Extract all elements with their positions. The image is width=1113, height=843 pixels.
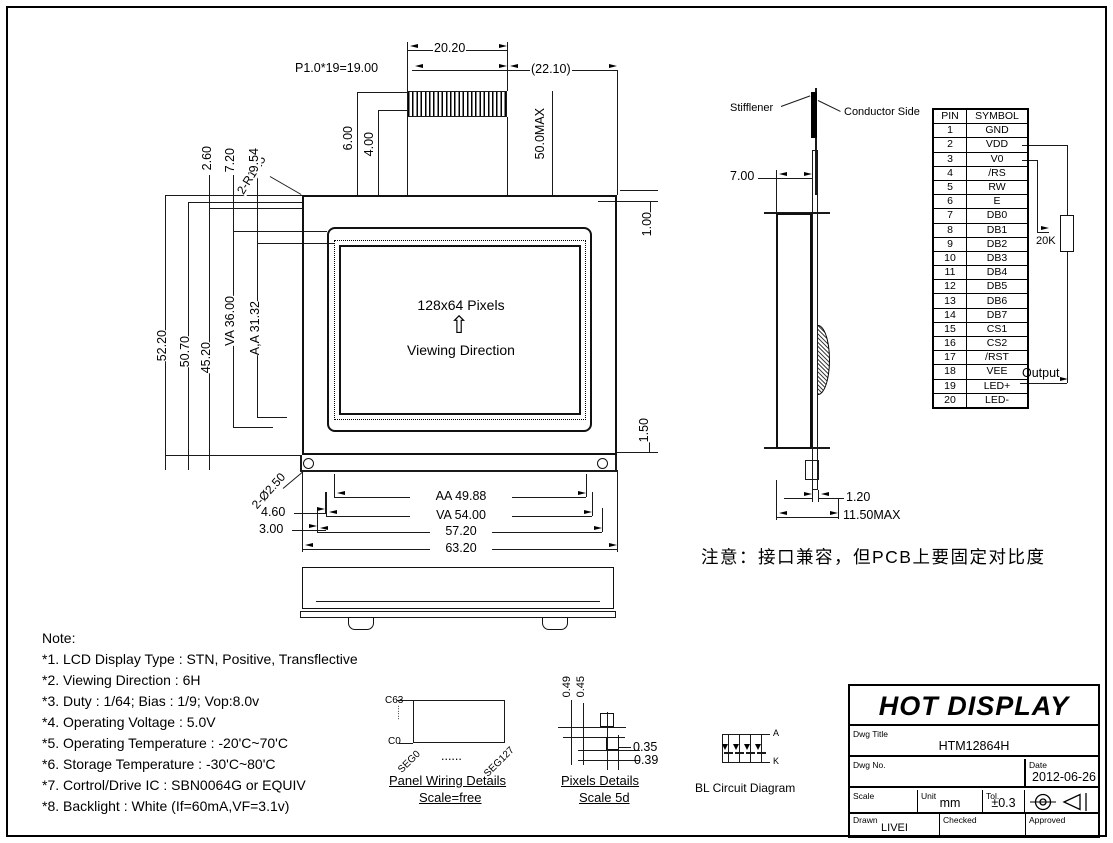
pin-number: 5 [933, 180, 967, 194]
dim-height-max: 50.0MAX [534, 108, 547, 159]
scale-label: Scale [853, 791, 874, 801]
pin-number: 19 [933, 379, 967, 393]
pin-symbol: E [967, 195, 1029, 209]
draw-line [292, 530, 326, 531]
arrowhead [1060, 377, 1071, 381]
draw-line [619, 747, 631, 748]
draw-line [300, 470, 617, 472]
dim-width-va: VA 54.00 [410, 509, 512, 522]
draw-box [812, 150, 818, 490]
title-block-dwg-no-cell: Dwg No. [850, 759, 1024, 788]
unit-value: mm [918, 796, 982, 810]
notes-block: Note: *1. LCD Display Type : STN, Positi… [42, 628, 358, 817]
dim-top-width: 20.20 [433, 42, 466, 55]
pin-number: 8 [933, 223, 967, 237]
dim-height-va: VA 36.00 [224, 296, 237, 346]
draw-line [558, 727, 626, 728]
pin-row: 1GND [933, 124, 1028, 138]
draw-box [542, 617, 568, 630]
draw-box [303, 458, 314, 469]
arrowhead [804, 492, 815, 496]
draw-line [407, 117, 408, 195]
checked-label: Checked [943, 815, 977, 825]
pin-symbol: V0 [967, 152, 1029, 166]
approved-label: Approved [1029, 815, 1065, 825]
pixels-dim-049: 0.49 [561, 676, 574, 697]
pin-symbol: DB1 [967, 223, 1029, 237]
pin-row: 7DB0 [933, 209, 1028, 223]
dim-height-5220: 52.20 [156, 330, 169, 361]
pin-symbol: DB7 [967, 308, 1029, 322]
dim-460: 4.60 [260, 506, 286, 519]
pin-symbol: DB3 [967, 251, 1029, 265]
draw-line [357, 92, 358, 195]
panel-wiring-vdots: ...... [390, 705, 403, 720]
pin-number: 20 [933, 393, 967, 408]
draw-line [758, 178, 776, 179]
dim-300: 3.00 [258, 523, 284, 536]
pin-row: 16CS2 [933, 337, 1028, 351]
title-block-scale-cell: Scale [850, 790, 917, 814]
date-value: 2012-06-26 [1026, 770, 1096, 784]
arrowhead [309, 524, 320, 528]
title-block-dwg-title-cell: Dwg Title HTM12864H [850, 728, 1098, 757]
note-item: *3. Duty : 1/64; Bias : 1/9; Vop:8.0v [42, 691, 358, 712]
draw-line [624, 760, 632, 761]
arrowhead [584, 510, 595, 514]
pin-number: 4 [933, 166, 967, 180]
arrowhead [407, 44, 418, 48]
draw-line [776, 178, 812, 179]
draw-line [750, 734, 751, 762]
arrowhead [499, 44, 510, 48]
draw-line [233, 427, 273, 428]
pixels-dim-039: 0.39 [633, 754, 659, 767]
arrowhead [804, 172, 815, 176]
dim-150: 1.50 [638, 418, 651, 442]
pin-symbol: /RS [967, 166, 1029, 180]
pin-row: 8DB1 [933, 223, 1028, 237]
pin-symbol: VEE [967, 365, 1029, 379]
draw-box [413, 700, 505, 743]
pin-symbol: /RST [967, 351, 1029, 365]
draw-line [620, 190, 658, 191]
pin-row: 14DB7 [933, 308, 1028, 322]
panel-wiring-bottom-label: C0 [387, 735, 402, 748]
draw-line [1067, 145, 1068, 215]
draw-line [412, 70, 507, 71]
draw-line [257, 417, 287, 418]
draw-box [407, 91, 507, 117]
pin-number: 14 [933, 308, 967, 322]
pin-number: 1 [933, 124, 967, 138]
pin-number: 10 [933, 251, 967, 265]
dim-600: 6.00 [342, 126, 355, 150]
arrowhead [317, 507, 328, 511]
pin-symbol: CS2 [967, 337, 1029, 351]
stiffener-label: Stifflener [729, 102, 774, 115]
note-item: *8. Backlight : White (If=60mA,VF=3.1v) [42, 796, 358, 817]
company-name: HOT DISPLAY [850, 686, 1098, 726]
title-block-checked-cell: Checked [939, 814, 1025, 836]
note-item: *2. Viewing Direction : 6H [42, 670, 358, 691]
dim-width-6320: 63.20 [430, 542, 492, 555]
dim-height-aa: A,A 31.32 [249, 301, 262, 355]
pin-number: 18 [933, 365, 967, 379]
draw-line [257, 175, 258, 417]
draw-line [776, 170, 777, 213]
draw-line [739, 734, 740, 762]
draw-line [378, 110, 407, 111]
pin-row: 15CS1 [933, 322, 1028, 336]
draw-box [600, 713, 614, 727]
draw-box [811, 92, 817, 138]
tol-value: ±0.3 [983, 796, 1024, 810]
draw-line [784, 498, 812, 499]
arrowhead [578, 491, 589, 495]
arrowhead [722, 744, 728, 753]
pin-row: 10DB3 [933, 251, 1028, 265]
draw-line [357, 92, 407, 93]
pin-symbol: GND [967, 124, 1029, 138]
pin-symbol: DB2 [967, 237, 1029, 251]
arrowhead [1041, 226, 1052, 230]
pin-number: 12 [933, 280, 967, 294]
arrowhead [818, 492, 829, 496]
title-block-approved-cell: Approved [1025, 814, 1098, 836]
conductor-side-label: Conductor Side [843, 106, 921, 119]
draw-line [728, 734, 729, 762]
draw-line [552, 91, 553, 195]
pin-number: 9 [933, 237, 967, 251]
dwg-no-label: Dwg No. [853, 760, 886, 770]
draw-line [209, 175, 210, 470]
draw-line [615, 455, 617, 471]
dwg-title-value: HTM12864H [850, 739, 1098, 753]
draw-box [606, 737, 619, 750]
draw-line [617, 70, 618, 195]
arrowhead [334, 491, 345, 495]
draw-line [571, 700, 572, 765]
arrowhead [507, 64, 518, 68]
pin-number: 15 [933, 322, 967, 336]
pin-number: 13 [933, 294, 967, 308]
dim-height-4520: 45.20 [200, 342, 213, 373]
draw-box [805, 460, 819, 480]
arrowhead [755, 744, 761, 753]
arrowhead [776, 172, 787, 176]
dim-400: 4.00 [363, 132, 376, 156]
draw-line [294, 513, 326, 514]
pin-row: 20LED- [933, 393, 1028, 408]
bl-circuit-caption: BL Circuit Diagram [694, 782, 796, 795]
draw-line [165, 455, 302, 456]
date-label: Date [1029, 760, 1047, 770]
draw-line [165, 195, 302, 196]
drawing-canvas: 20.20 P1.0*19=19.00 (22.10) 50.0MAX 6.00… [0, 0, 1113, 843]
pin-row: 19LED+ [933, 379, 1028, 393]
pin-row: 11DB4 [933, 266, 1028, 280]
dim-depth-max: 11.50MAX [842, 509, 901, 522]
display-resolution-text: 128x64 Pixels [390, 299, 532, 312]
pin-number: 3 [933, 152, 967, 166]
chinese-note: 注意：接口兼容，但PCB上要固定对比度 [700, 551, 1046, 564]
title-block-unit-cell: Unit mm [917, 790, 982, 814]
pin-row: 4/RS [933, 166, 1028, 180]
note-item: *5. Operating Temperature : -20'C~70'C [42, 733, 358, 754]
arrowhead [744, 744, 750, 753]
pin-symbol: DB4 [967, 266, 1029, 280]
bl-anode-label: A [772, 727, 780, 740]
pin-row: 9DB2 [933, 237, 1028, 251]
pin-table: PINSYMBOL1GND2VDD3V04/RS5RW6E7DB08DB19DB… [932, 108, 1029, 409]
pin-number: 6 [933, 195, 967, 209]
pin-row: 12DB5 [933, 280, 1028, 294]
pin-number: 11 [933, 266, 967, 280]
pin-number: 17 [933, 351, 967, 365]
draw-line [300, 455, 302, 471]
draw-line [1037, 232, 1049, 233]
title-block-tol-cell: Tol. ±0.3 [982, 790, 1024, 814]
pixels-detail-caption: Pixels Details [560, 774, 640, 787]
draw-box [597, 458, 608, 469]
dim-height-5070: 50.70 [179, 336, 192, 367]
dim-100: 1.00 [641, 212, 654, 236]
title-block-date-cell: Date 2012-06-26 [1024, 759, 1098, 788]
pin-number: 2 [933, 138, 967, 152]
draw-line [1037, 160, 1038, 232]
title-block-projection-cell [1024, 790, 1098, 814]
arrowhead [733, 744, 739, 753]
title-block-drawn-cell: Drawn LIVEI [850, 814, 939, 836]
arrowhead [609, 543, 620, 547]
pin-number: 7 [933, 209, 967, 223]
draw-line [507, 117, 508, 195]
dim-700: 7.00 [729, 170, 755, 183]
symbol-col-header: SYMBOL [967, 109, 1029, 124]
dim-720: 7.20 [224, 148, 237, 172]
dim-width-aa: AA 49.88 [410, 490, 512, 503]
pin-row: 17/RST [933, 351, 1028, 365]
pin-symbol: VDD [967, 138, 1029, 152]
pin-symbol: RW [967, 180, 1029, 194]
arrowhead [594, 526, 605, 530]
viewing-direction-arrow-icon: ⇧ [448, 314, 470, 338]
pin-symbol: CS1 [967, 322, 1029, 336]
draw-line [378, 110, 379, 195]
draw-line [818, 498, 844, 499]
pin-symbol: DB0 [967, 209, 1029, 223]
pixels-dim-045: 0.45 [575, 676, 588, 697]
draw-line [1067, 252, 1068, 383]
pin-symbol: DB6 [967, 294, 1029, 308]
pin-row: 3V0 [933, 152, 1028, 166]
note-item: *4. Operating Voltage : 5.0V [42, 712, 358, 733]
pin-row: 6E [933, 195, 1028, 209]
bl-cathode-label: K [772, 755, 780, 768]
notes-title: Note: [42, 628, 358, 649]
arrowhead [609, 64, 620, 68]
draw-box [302, 567, 614, 609]
arrowhead [412, 64, 423, 68]
draw-line [302, 470, 303, 552]
draw-line [722, 734, 770, 735]
draw-box [1060, 215, 1074, 252]
pin-number: 16 [933, 337, 967, 351]
pin-symbol: LED- [967, 393, 1029, 408]
pin-symbol: DB5 [967, 280, 1029, 294]
dim-120: 1.20 [845, 491, 871, 504]
dim-pitch: P1.0*19=19.00 [294, 62, 379, 75]
draw-box [776, 213, 812, 449]
viewing-direction-text: Viewing Direction [382, 344, 540, 357]
dim-260: 2.60 [201, 146, 214, 170]
draw-line [722, 762, 770, 763]
panel-wiring-scale: Scale=free [418, 791, 483, 804]
arrowhead [302, 543, 313, 547]
resistor-value-label: 20K [1035, 235, 1057, 248]
draw-line [616, 452, 658, 453]
output-label: Output [1021, 367, 1061, 380]
drawn-value: LIVEI [850, 822, 939, 834]
pin-symbol: LED+ [967, 379, 1029, 393]
dim-conn-right: (22.10) [530, 63, 572, 76]
arrowhead [830, 511, 841, 515]
draw-line [617, 470, 618, 552]
dim-954: 9.54 [248, 148, 261, 172]
pin-row: 2VDD [933, 138, 1028, 152]
arrowhead [776, 511, 787, 515]
panel-wiring-hdots: ...... [440, 750, 463, 763]
pin-col-header: PIN [933, 109, 967, 124]
pin-row: 13DB6 [933, 294, 1028, 308]
draw-line [761, 734, 762, 762]
draw-line [188, 202, 302, 203]
projection-symbol-icon [1030, 791, 1092, 813]
dwg-title-label: Dwg Title [853, 729, 888, 739]
dim-width-5720: 57.20 [430, 525, 492, 538]
title-block: HOT DISPLAY Dwg Title HTM12864H Dwg No. … [848, 684, 1100, 838]
draw-line [838, 498, 839, 519]
draw-line [407, 42, 408, 91]
note-item: *6. Storage Temperature : -30'C~80'C [42, 754, 358, 775]
draw-line [583, 703, 584, 765]
title-block-company-cell: HOT DISPLAY [850, 686, 1098, 726]
note-item: *1. LCD Display Type : STN, Positive, Tr… [42, 649, 358, 670]
draw-line [578, 750, 640, 751]
pin-row: 18VEE [933, 365, 1028, 379]
note-item: *7. Cortrol/Drive IC : SBN0064G or EQUIV [42, 775, 358, 796]
pin-row: 5RW [933, 180, 1028, 194]
draw-line [209, 208, 302, 209]
pixels-detail-scale: Scale 5d [578, 791, 631, 804]
panel-wiring-caption: Panel Wiring Details [388, 774, 507, 787]
draw-line [776, 517, 838, 518]
